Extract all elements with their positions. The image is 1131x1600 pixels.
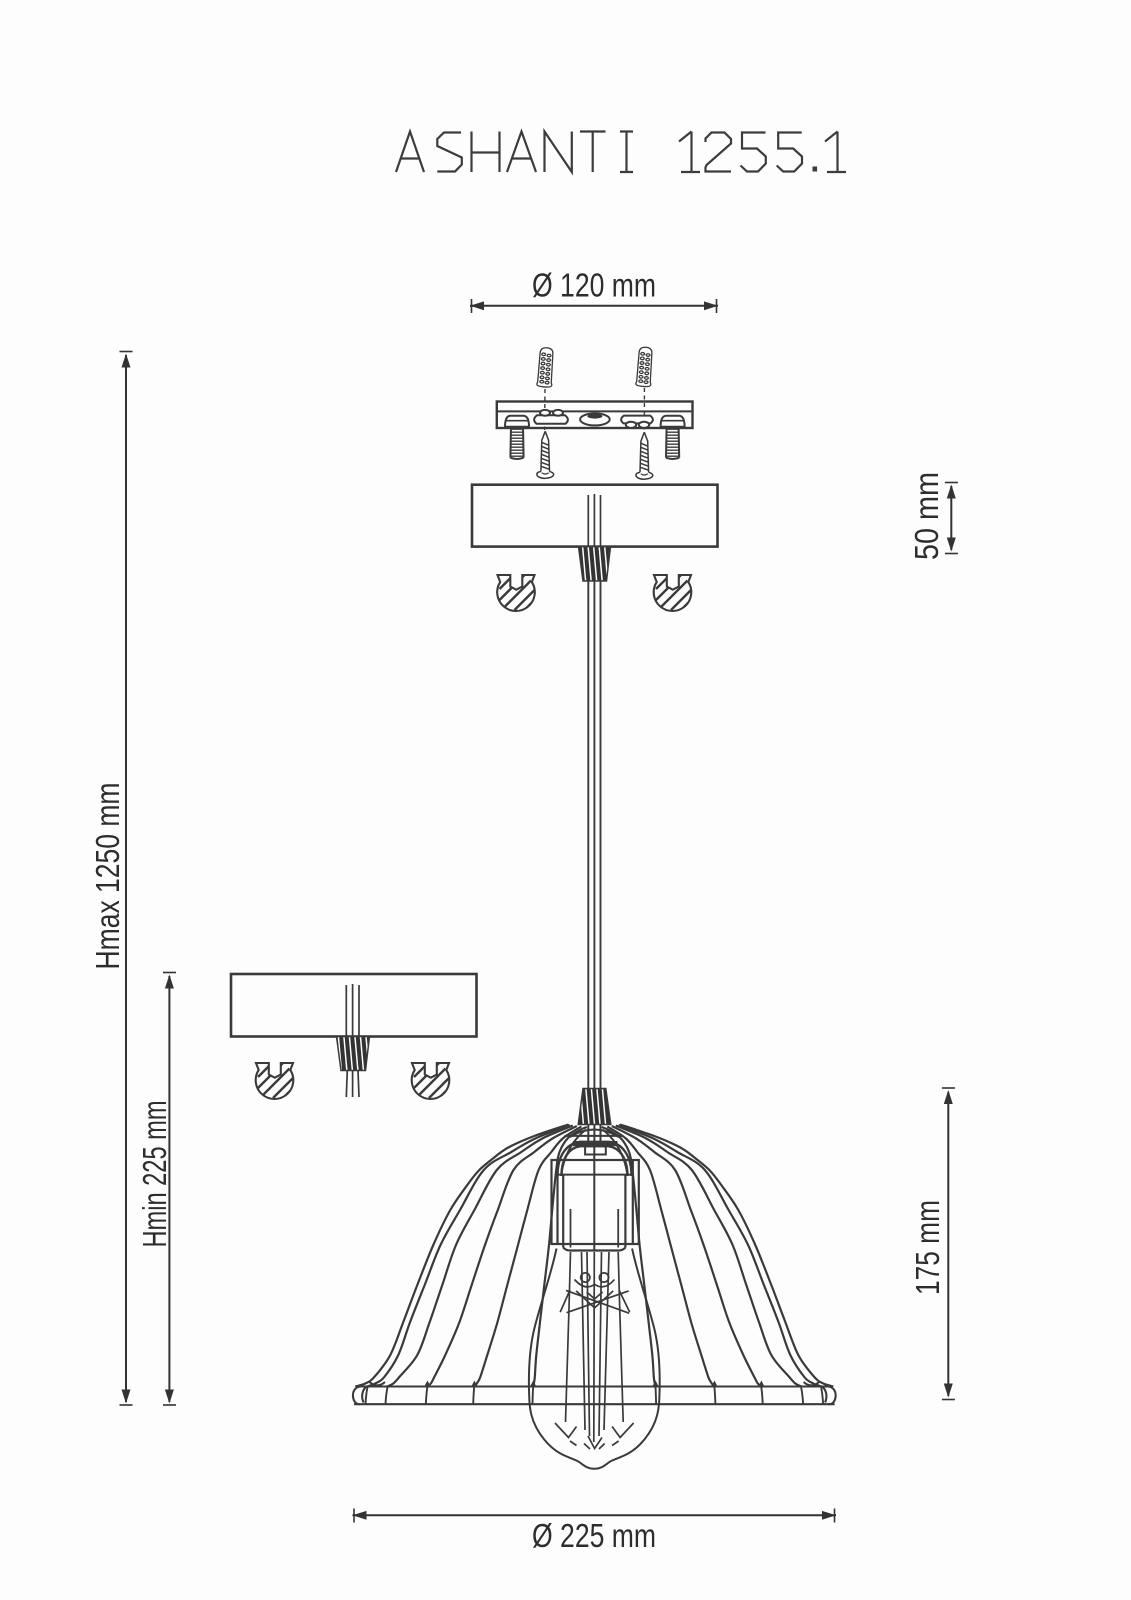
svg-text:Hmin 225 mm: Hmin 225 mm	[136, 1101, 173, 1248]
svg-text:Ø 120 mm: Ø 120 mm	[532, 267, 656, 304]
svg-text:175 mm: 175 mm	[909, 1200, 946, 1295]
svg-text:50 mm: 50 mm	[908, 472, 945, 560]
svg-text:Ø 225 mm: Ø 225 mm	[532, 1517, 656, 1554]
svg-text:Hmax 1250 mm: Hmax 1250 mm	[89, 783, 126, 970]
